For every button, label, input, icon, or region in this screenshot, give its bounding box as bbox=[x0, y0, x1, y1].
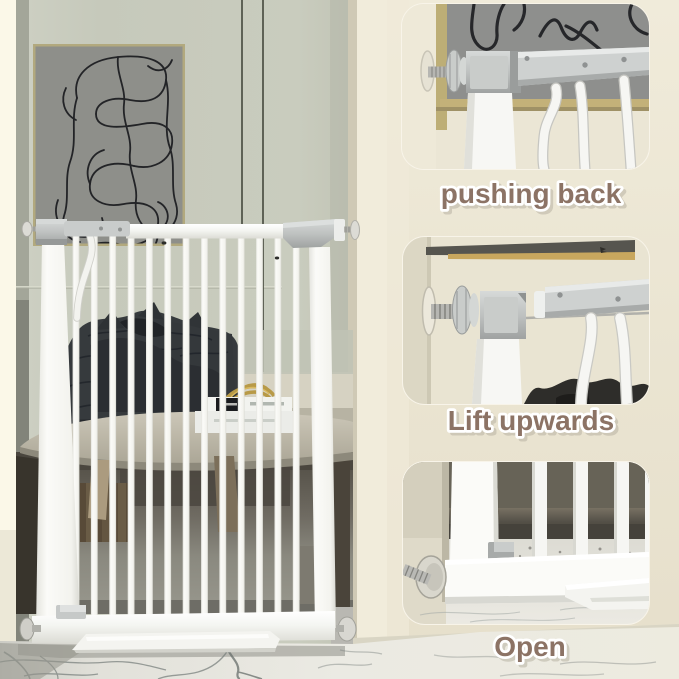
svg-text:pushing back: pushing back bbox=[441, 178, 622, 209]
svg-text:Lift upwards: Lift upwards bbox=[448, 405, 614, 436]
svg-text:Open: Open bbox=[494, 631, 566, 662]
